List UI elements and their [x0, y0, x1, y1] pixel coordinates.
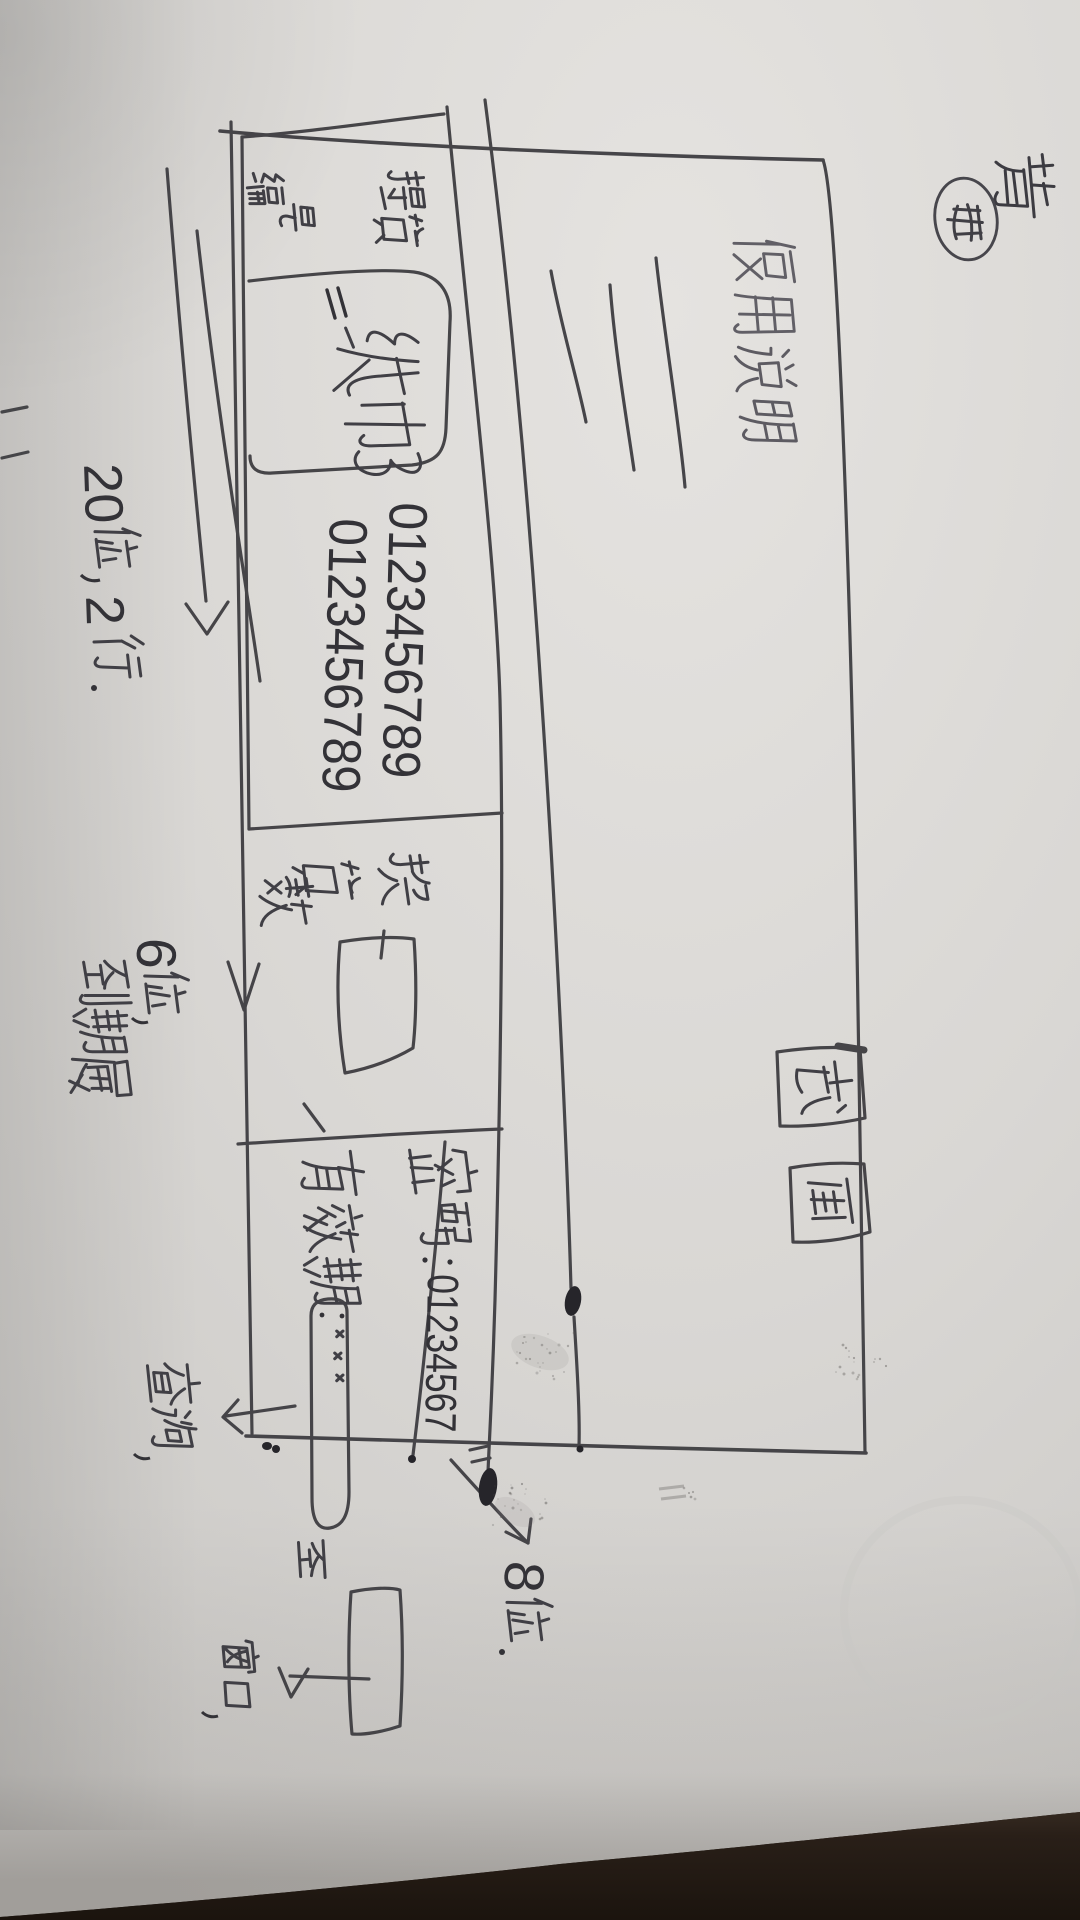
svg-text:8: 8 — [492, 1559, 557, 1594]
svg-text:0123456789: 0123456789 — [310, 518, 378, 794]
svg-text:0123456789: 0123456789 — [370, 502, 438, 780]
svg-text:6: 6 — [124, 936, 189, 970]
svg-text:2: 2 — [74, 594, 135, 626]
svg-text:20: 20 — [72, 462, 134, 524]
svg-text:01234567: 01234567 — [415, 1274, 467, 1433]
